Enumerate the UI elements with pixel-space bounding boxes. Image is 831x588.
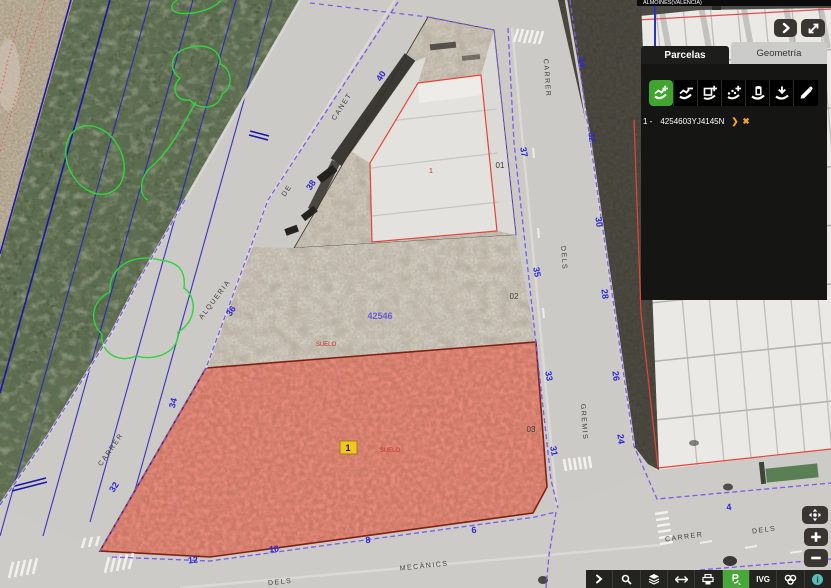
svg-text:6: 6 — [471, 525, 477, 535]
svg-text:8: 8 — [365, 535, 371, 545]
svg-text:37: 37 — [518, 146, 530, 158]
svg-text:01: 01 — [496, 161, 505, 170]
svg-text:33: 33 — [543, 370, 555, 382]
svg-text:35: 35 — [531, 266, 543, 278]
svg-text:26: 26 — [610, 370, 621, 381]
svg-text:42546: 42546 — [367, 311, 392, 321]
svg-text:31: 31 — [548, 445, 560, 457]
svg-text:1: 1 — [429, 168, 433, 175]
svg-text:32: 32 — [586, 131, 597, 142]
svg-text:SUELO: SUELO — [380, 448, 401, 454]
svg-text:34: 34 — [576, 56, 587, 67]
svg-text:24: 24 — [615, 433, 626, 444]
svg-text:4: 4 — [726, 502, 732, 512]
svg-text:02: 02 — [510, 292, 519, 301]
svg-text:28: 28 — [599, 288, 610, 299]
svg-text:SUELO: SUELO — [316, 342, 337, 348]
svg-text:03: 03 — [527, 425, 536, 434]
svg-text:10: 10 — [268, 544, 279, 555]
svg-text:30: 30 — [593, 216, 604, 227]
svg-text:12: 12 — [187, 555, 198, 566]
svg-text:1: 1 — [345, 443, 350, 453]
